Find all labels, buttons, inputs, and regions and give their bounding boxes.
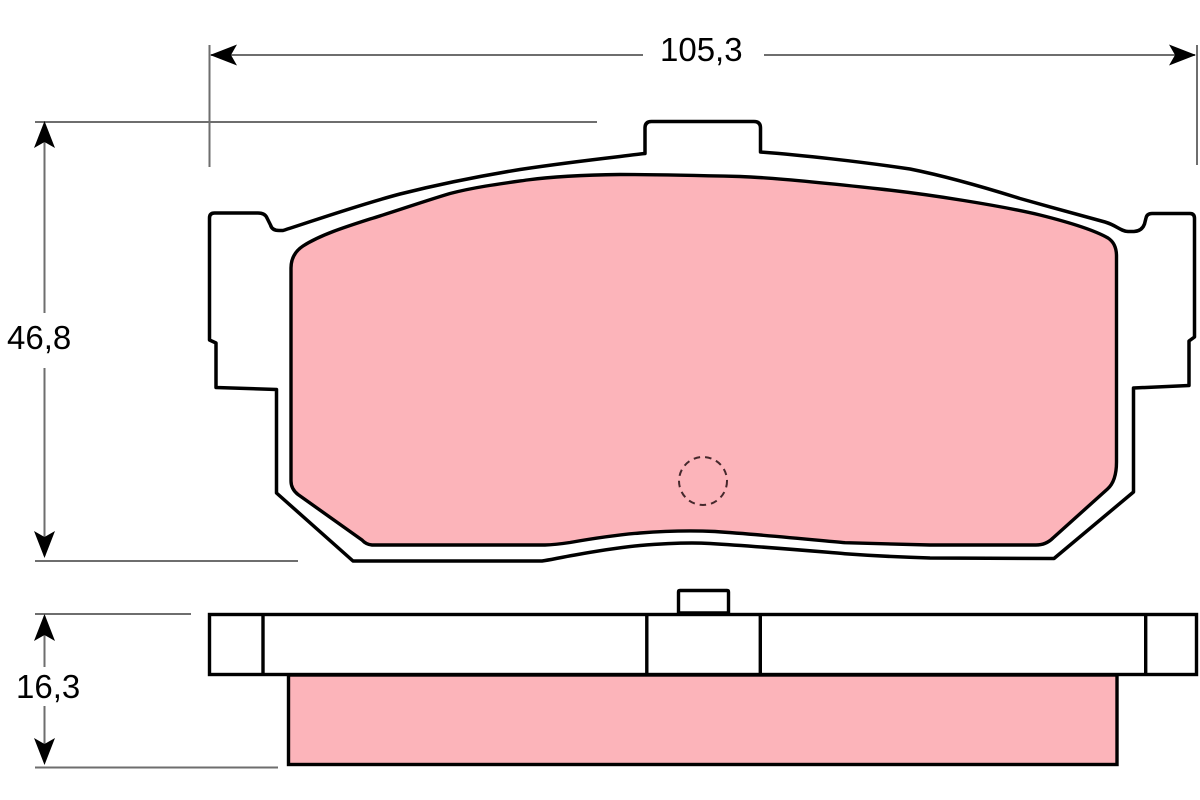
svg-text:105,3: 105,3	[660, 31, 743, 68]
svg-text:46,8: 46,8	[7, 319, 71, 356]
svg-text:16,3: 16,3	[16, 668, 80, 705]
